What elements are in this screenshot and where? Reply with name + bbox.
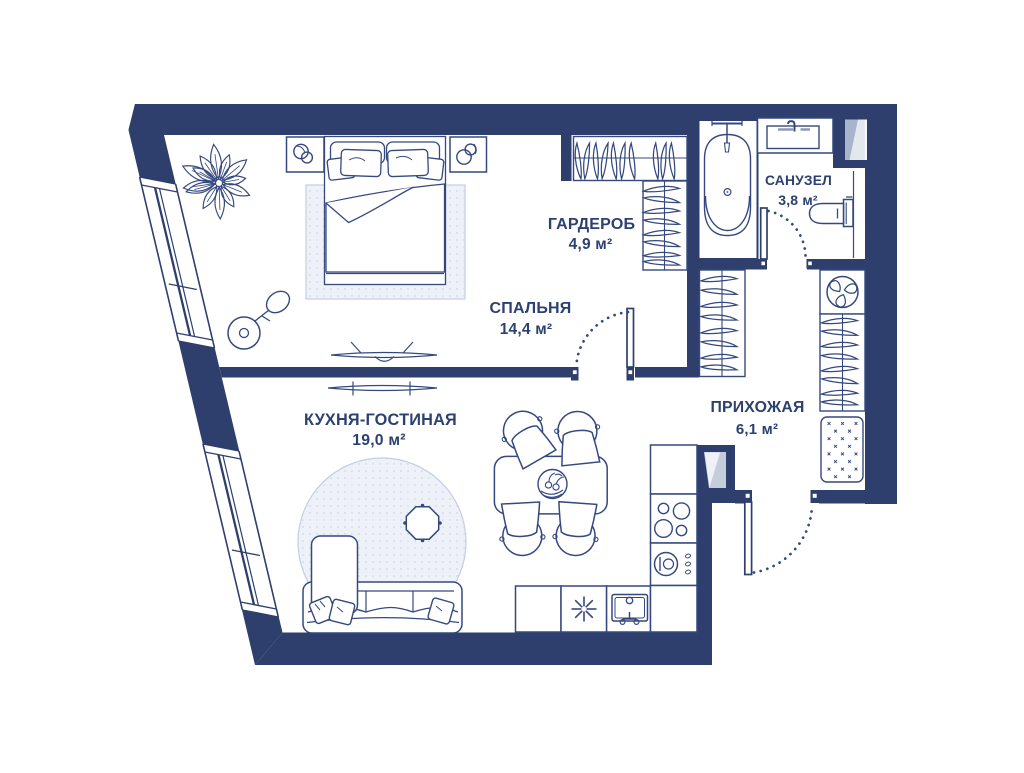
svg-text:6,1 м²: 6,1 м²	[736, 421, 778, 438]
svg-text:3,8 м²: 3,8 м²	[778, 192, 818, 208]
svg-text:САНУЗЕЛ: САНУЗЕЛ	[765, 173, 832, 188]
svg-text:ГАРДЕРОБ: ГАРДЕРОБ	[548, 216, 635, 233]
svg-text:14,4 м²: 14,4 м²	[500, 321, 553, 338]
svg-text:СПАЛЬНЯ: СПАЛЬНЯ	[490, 300, 572, 317]
svg-text:ПРИХОЖАЯ: ПРИХОЖАЯ	[710, 399, 804, 416]
svg-text:19,0 м²: 19,0 м²	[352, 432, 405, 449]
svg-text:4,9 м²: 4,9 м²	[569, 236, 613, 253]
svg-text:КУХНЯ-ГОСТИНАЯ: КУХНЯ-ГОСТИНАЯ	[304, 411, 457, 429]
